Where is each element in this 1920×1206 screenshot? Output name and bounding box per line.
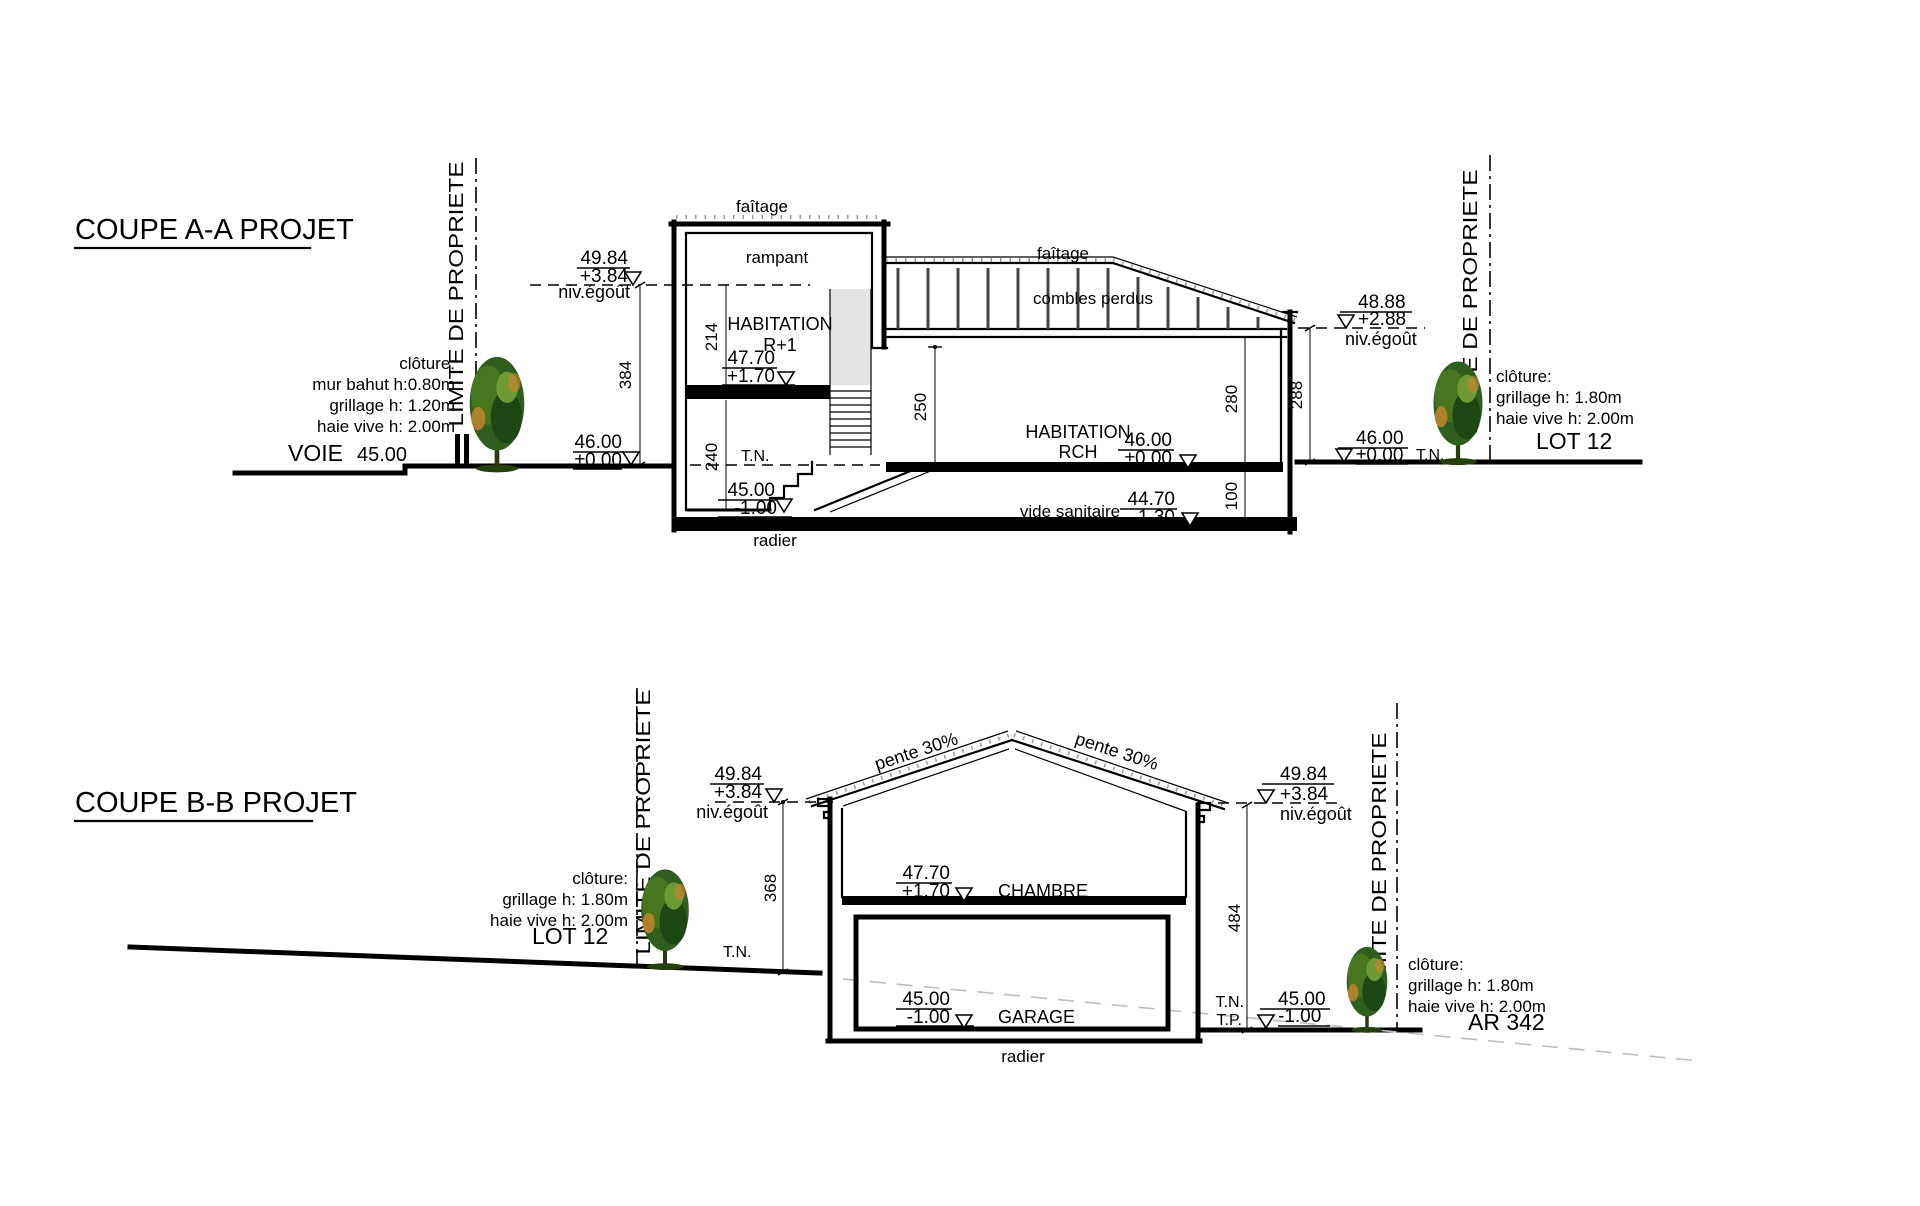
- level-value: +3.84: [1280, 784, 1329, 805]
- coupe-b: COUPE B-B PROJET LIMITE DE PROPRIETE LIM…: [75, 688, 1700, 1066]
- level-value: ±0.00: [1356, 445, 1403, 466]
- cloture-left-line2: grillage h: 1.80m: [502, 890, 628, 909]
- pente-left-label: pente 30%: [872, 728, 960, 774]
- cloture-right-line1: clôture:: [1496, 367, 1552, 386]
- dim-368: 368: [761, 874, 780, 902]
- cloture-right-line2: grillage h: 1.80m: [1408, 976, 1534, 995]
- cloture-left-line1: clôture:: [572, 869, 628, 888]
- niv-egout-label: niv.égoût: [1280, 804, 1352, 824]
- niv-egout-label: niv.égoût: [696, 802, 768, 822]
- pente-right-label: pente 30%: [1073, 728, 1161, 774]
- faitage-label: faîtage: [736, 197, 788, 216]
- chambre-label: CHAMBRE: [998, 881, 1088, 901]
- tn-label: T.N.: [741, 448, 769, 465]
- level-value: -1.00: [734, 498, 777, 519]
- dim-250: 250: [911, 393, 930, 421]
- level-value: -1.00: [907, 1007, 950, 1028]
- dim-100: 100: [1222, 482, 1241, 510]
- cloture-left-line3: grillage h: 1.20m: [329, 396, 455, 415]
- cloture-left-line4: haie vive h: 2.00m: [317, 417, 455, 436]
- stair-treads: [830, 391, 871, 447]
- habitation-r1-label: HABITATION: [727, 314, 832, 334]
- niv-egout-label: niv.égoût: [1345, 329, 1417, 349]
- dim-484: 484: [1225, 904, 1244, 932]
- rampant-label: rampant: [746, 248, 809, 267]
- habitation-rch-label: HABITATION: [1025, 422, 1130, 442]
- voie-label: VOIE: [288, 440, 343, 466]
- level-value: ±0.00: [575, 450, 622, 471]
- dim-384: 384: [616, 361, 635, 389]
- level-value: +2.88: [1358, 309, 1406, 330]
- dim-214: 214: [702, 323, 721, 351]
- cloture-left-line1: clôture:: [399, 354, 455, 373]
- level-value: ±0.00: [1125, 448, 1172, 469]
- cloture-right-line3: haie vive h: 2.00m: [1496, 409, 1634, 428]
- cloture-right-line2: grillage h: 1.80m: [1496, 388, 1622, 407]
- architectural-drawing-page: COUPE A-A PROJET LIMITE DE PROPRIETE LIM…: [0, 0, 1920, 1206]
- lot-label: LOT 12: [1536, 428, 1612, 454]
- section-drawing: COUPE A-A PROJET LIMITE DE PROPRIETE LIM…: [0, 0, 1920, 1206]
- cloture-right-line3: haie vive h: 2.00m: [1408, 997, 1546, 1016]
- tn-label: T.N.: [1216, 994, 1244, 1011]
- level-value: -1.30: [1132, 507, 1175, 528]
- level-value: -1.00: [1278, 1006, 1321, 1027]
- coupe-b-title: COUPE B-B PROJET: [75, 787, 357, 819]
- tree: [470, 357, 525, 472]
- vide-sanitaire-label: vide sanitaire: [1020, 502, 1120, 521]
- coupe-a-title: COUPE A-A PROJET: [75, 214, 354, 246]
- radier-label: radier: [753, 531, 797, 550]
- dim-288: 288: [1287, 381, 1306, 409]
- cloture-left-line2: mur bahut h:0.80m: [312, 375, 455, 394]
- voie-level: 45.00: [357, 444, 407, 466]
- level-value: +3.84: [714, 782, 763, 803]
- combles-perdus-label: combles perdus: [1033, 289, 1153, 308]
- tp-label: T.P.: [1217, 1012, 1243, 1029]
- faitage-right-label: faîtage: [1037, 244, 1089, 263]
- dim-280: 280: [1222, 385, 1241, 413]
- level-value: +1.70: [727, 366, 775, 387]
- habitation-rch-label2: RCH: [1059, 442, 1098, 462]
- niv-egout-label: niv.égoût: [558, 282, 630, 302]
- habitation-r1-label2: R+1: [763, 335, 797, 355]
- dim-240: 240: [702, 443, 721, 471]
- tree: [1347, 947, 1388, 1033]
- level-value: +1.70: [902, 881, 950, 902]
- coupe-a: COUPE A-A PROJET LIMITE DE PROPRIETE LIM…: [75, 155, 1640, 550]
- cloture-right-line1: clôture:: [1408, 955, 1464, 974]
- garage-label: GARAGE: [998, 1007, 1075, 1027]
- cloture-left-line3: haie vive h: 2.00m: [490, 911, 628, 930]
- tn-label: T.N.: [723, 944, 751, 961]
- radier-label: radier: [1001, 1047, 1045, 1066]
- level-value: 49.84: [1280, 764, 1328, 785]
